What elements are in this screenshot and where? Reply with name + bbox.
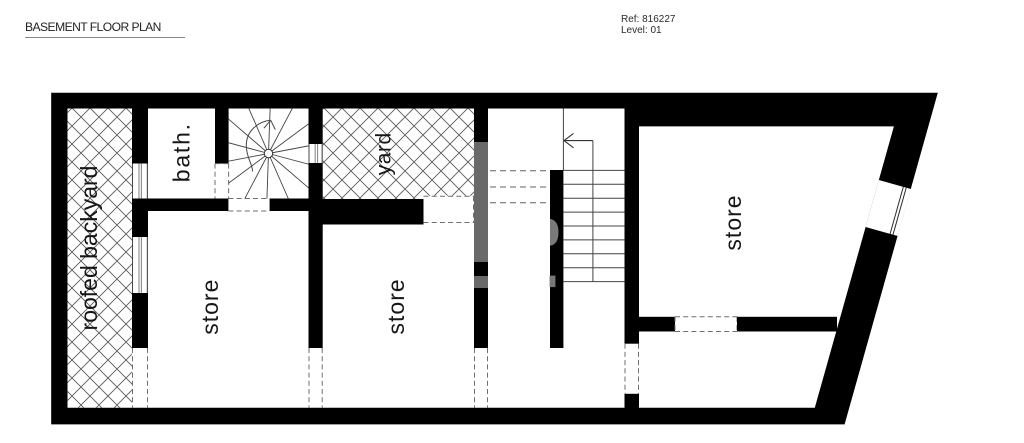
svg-text:store: store xyxy=(720,194,746,250)
svg-text:bath.: bath. xyxy=(169,122,195,182)
svg-text:roofed backyard: roofed backyard xyxy=(76,166,102,331)
svg-text:store: store xyxy=(197,279,223,335)
svg-text:store: store xyxy=(383,278,409,334)
svg-text:yard: yard xyxy=(372,132,395,175)
